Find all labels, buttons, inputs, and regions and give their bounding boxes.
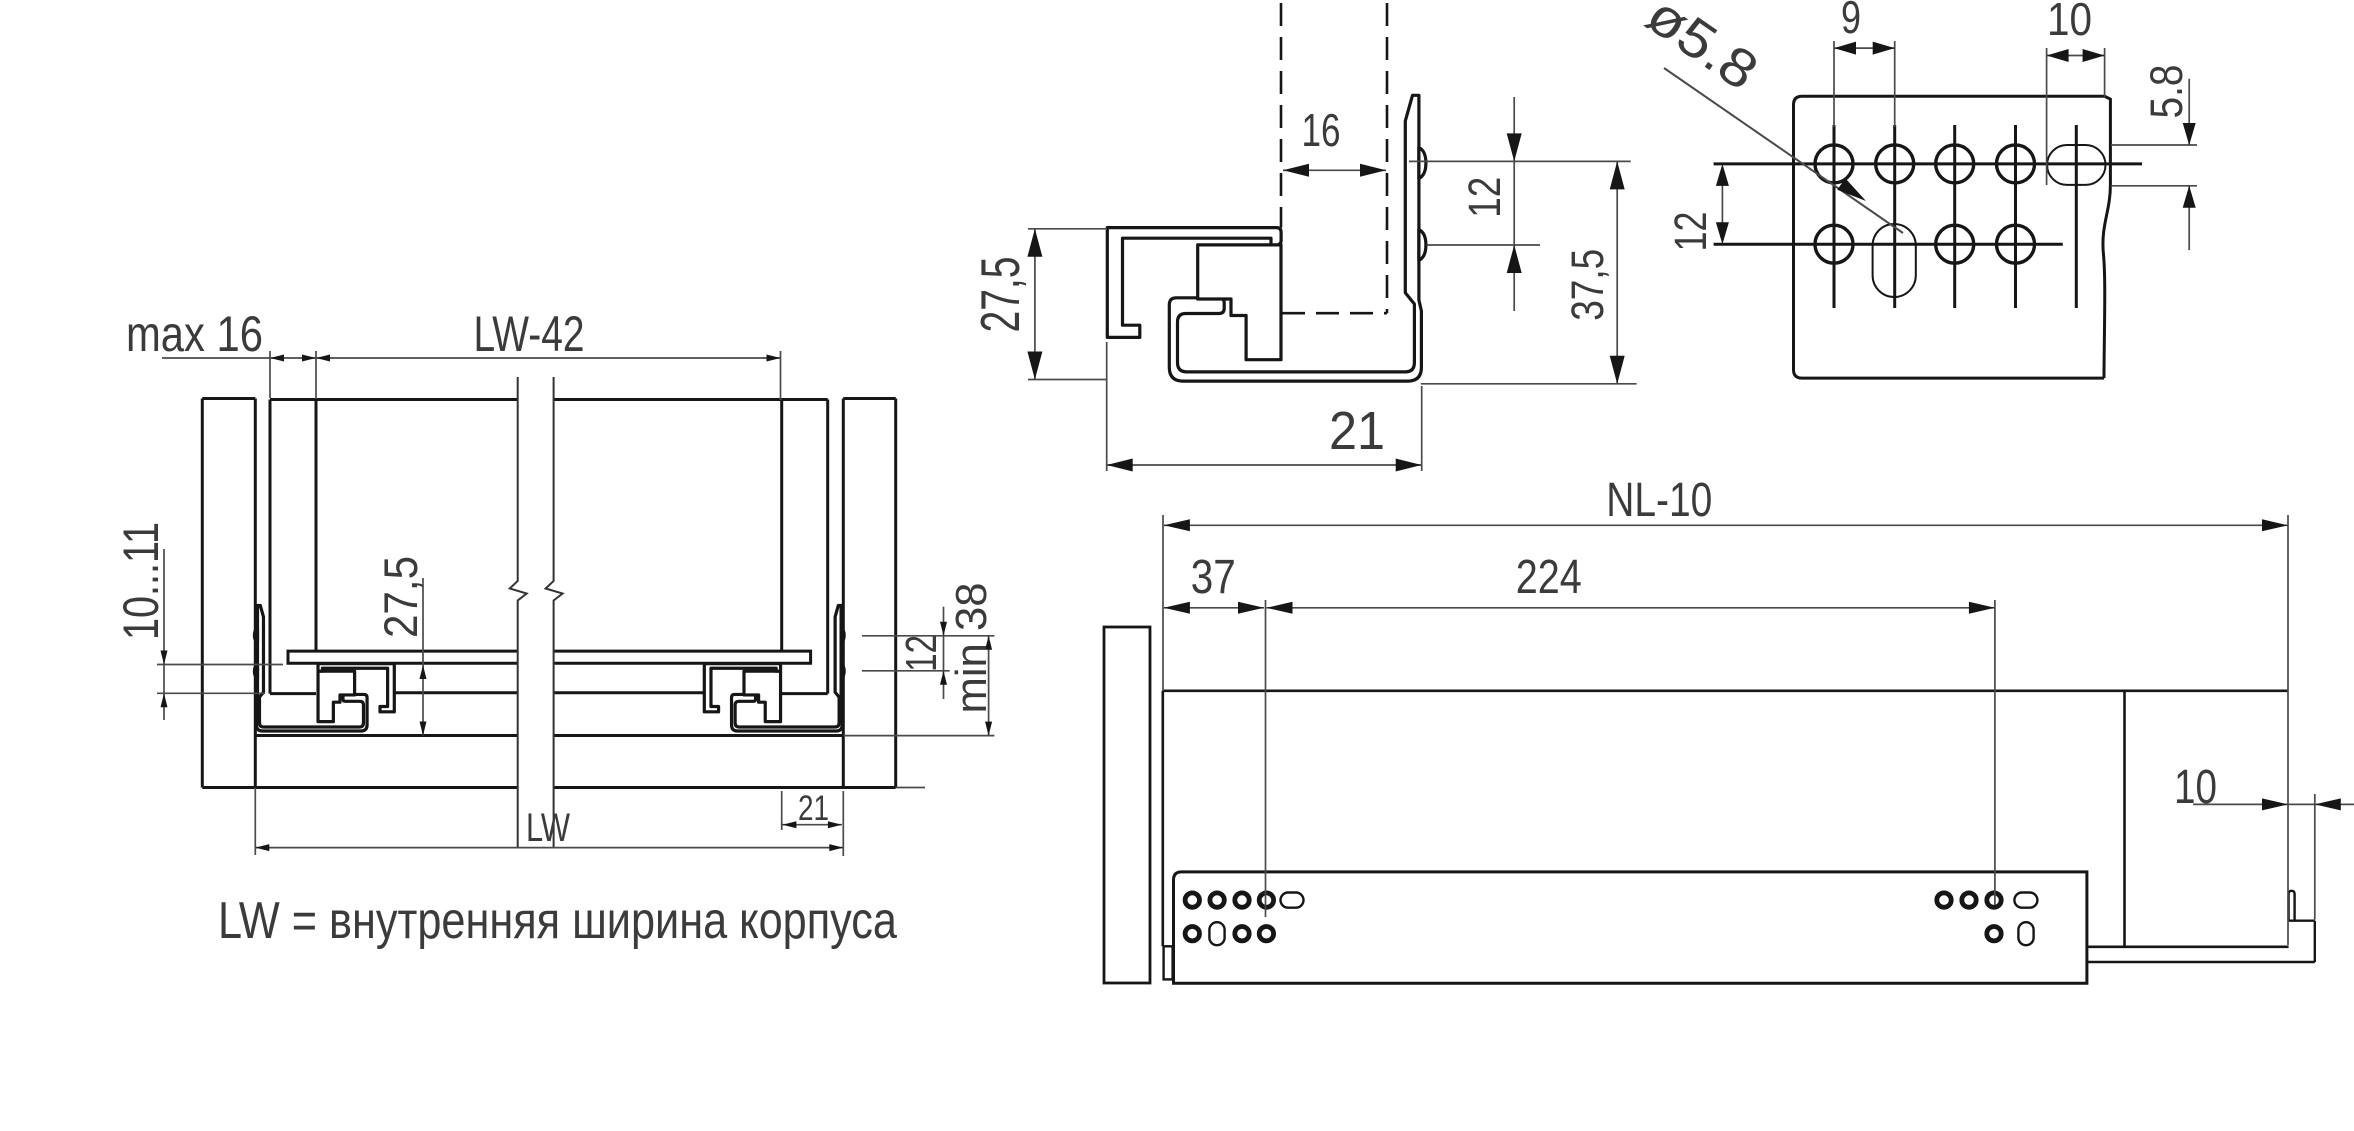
svg-text:16: 16 — [1302, 104, 1341, 156]
svg-text:min 38: min 38 — [947, 583, 996, 714]
svg-text:5.8: 5.8 — [2141, 65, 2192, 119]
svg-text:12: 12 — [1665, 212, 1716, 252]
svg-text:12: 12 — [1459, 177, 1510, 218]
svg-text:NL-10: NL-10 — [1606, 474, 1712, 527]
svg-text:10...11: 10...11 — [113, 522, 169, 640]
svg-text:10: 10 — [2047, 0, 2092, 45]
svg-text:21: 21 — [798, 789, 829, 828]
svg-text:10: 10 — [2174, 761, 2217, 814]
svg-text:27,5: 27,5 — [969, 257, 1031, 333]
svg-text:max 16: max 16 — [126, 306, 263, 362]
svg-text:9: 9 — [1841, 0, 1861, 43]
svg-text:27,5: 27,5 — [374, 556, 427, 638]
svg-text:224: 224 — [1516, 551, 1582, 604]
svg-text:LW = внутренняя ширина корпуса: LW = внутренняя ширина корпуса — [218, 892, 897, 950]
svg-text:37: 37 — [1191, 551, 1236, 604]
svg-text:LW-42: LW-42 — [474, 306, 585, 362]
svg-text:LW: LW — [526, 806, 570, 850]
svg-text:21: 21 — [1329, 401, 1385, 461]
svg-text:37,5: 37,5 — [1562, 249, 1613, 321]
svg-text:12: 12 — [897, 635, 946, 672]
